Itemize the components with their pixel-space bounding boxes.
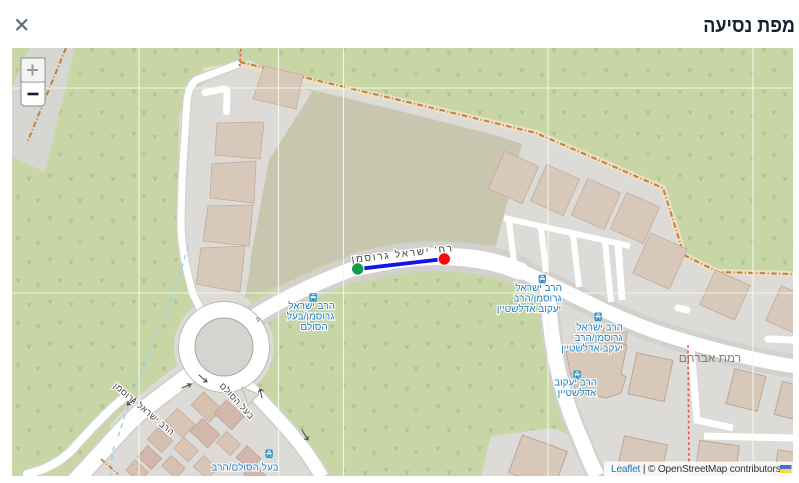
svg-text:רמת אברהם: רמת אברהם xyxy=(679,351,741,365)
svg-text:Leaflet | © OpenStreetMap cont: Leaflet | © OpenStreetMap contributors xyxy=(611,464,781,475)
svg-text:הרב יעקוב אדלשטיין: הרב יעקוב אדלשטיין xyxy=(554,378,600,400)
svg-text:בעל הסולם/הרב: בעל הסולם/הרב xyxy=(211,462,278,474)
